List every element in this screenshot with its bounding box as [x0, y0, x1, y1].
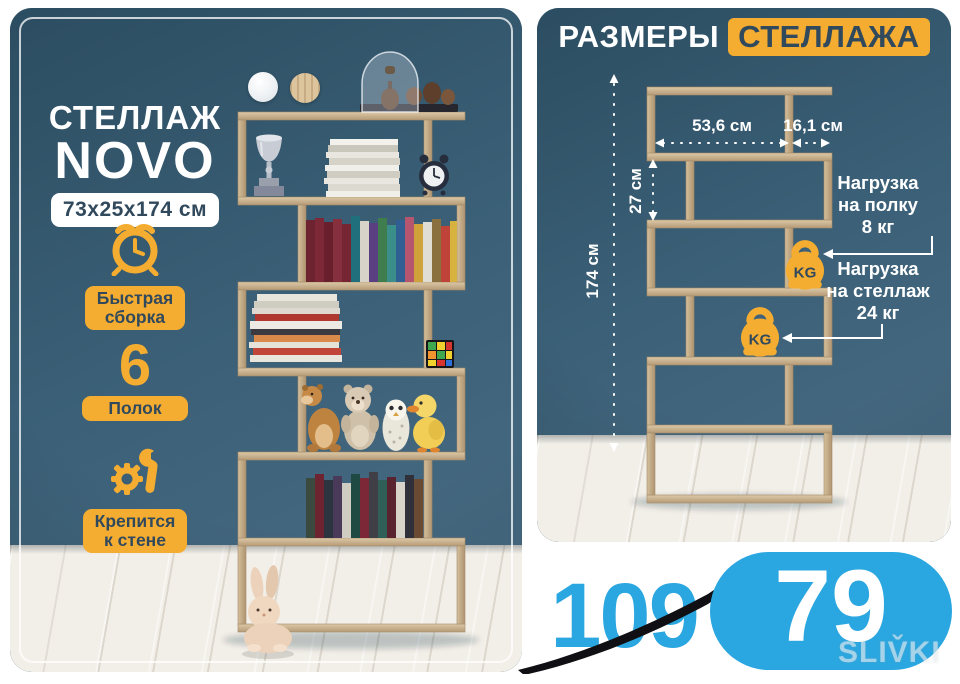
row1-items: [254, 135, 449, 198]
top-decor: [360, 52, 458, 112]
row5-books: [306, 472, 423, 538]
feature-pill-assembly: Быстрая сборка: [85, 286, 185, 330]
feature-label: Крепится: [95, 511, 176, 531]
load-per-shelf-label: Нагрузка на полку 8 кг: [809, 172, 947, 238]
title-plain: РАЗМЕРЫ: [558, 19, 719, 55]
kettlebell-icon: KG: [741, 311, 779, 357]
load-line: Нагрузка: [809, 172, 947, 194]
total-height-label: 174 см: [583, 231, 603, 311]
kg-badge-label: KG: [749, 331, 772, 348]
plush-giraffe: [301, 384, 341, 452]
rubiks-cube: [426, 340, 454, 368]
feature-pill-wall-mount: Крепится к стене: [83, 509, 188, 553]
magazine-stack: [324, 139, 400, 197]
trophy: [254, 135, 284, 197]
title-highlight: СТЕЛЛАЖА: [728, 18, 930, 56]
feature-label: Быстрая: [97, 288, 173, 308]
color-swatch-white: [248, 72, 278, 102]
load-line: Нагрузка: [809, 258, 947, 280]
features-column: Быстрая сборка 6 Полок: [40, 222, 230, 553]
plush-teddy: [341, 385, 379, 451]
feature-label: Полок: [108, 398, 161, 418]
product-subtitle: NOVO: [40, 136, 230, 186]
cell-height-label: 27 см: [626, 160, 646, 222]
plush-owl: [383, 400, 410, 452]
load-line: на полку: [809, 194, 947, 216]
row2-books: [306, 216, 457, 282]
row3-items: [249, 294, 454, 368]
feature-label: сборка: [105, 307, 165, 327]
load-line: 24 кг: [809, 302, 947, 324]
strikethrough-swoosh: [516, 578, 728, 674]
product-title: СТЕЛЛАЖ: [40, 100, 230, 136]
shelf-width-label: 53,6 см: [672, 116, 772, 136]
title-block: СТЕЛЛАЖ NOVO 73x25x174 см: [40, 100, 230, 227]
glass-cloche: [362, 52, 418, 112]
load-line: на стеллаж: [809, 280, 947, 302]
feature-pill-shelves: Полок: [82, 396, 187, 421]
shelf-count: 6: [119, 338, 151, 394]
side-width-label: 16,1 см: [773, 116, 853, 136]
right-panel-title: РАЗМЕРЫ СТЕЛЛАЖА: [537, 18, 951, 56]
watermark: SLIV̌KI: [838, 636, 941, 670]
gear-wrench-icon: [107, 447, 163, 499]
plush-duck: [407, 395, 445, 453]
load-total-label: Нагрузка на стеллаж 24 кг: [809, 258, 947, 324]
alarm-clock-icon: [106, 222, 164, 276]
color-swatch-oak: [290, 73, 320, 103]
feature-label: к стене: [104, 530, 166, 550]
promo-image: СТЕЛЛАЖ NOVO 73x25x174 см Быстрая сборка…: [0, 0, 960, 684]
left-panel: СТЕЛЛАЖ NOVO 73x25x174 см Быстрая сборка…: [10, 8, 522, 672]
shelf-frame: [647, 87, 832, 503]
row4-plush-toys: [301, 384, 445, 453]
right-panel: KG KG 53,6 см 16,1 см 27 см 174 см Нагру…: [537, 8, 951, 542]
alarm-clock-photo: [419, 155, 449, 196]
plush-bunny: [242, 564, 294, 659]
load-line: 8 кг: [809, 216, 947, 238]
